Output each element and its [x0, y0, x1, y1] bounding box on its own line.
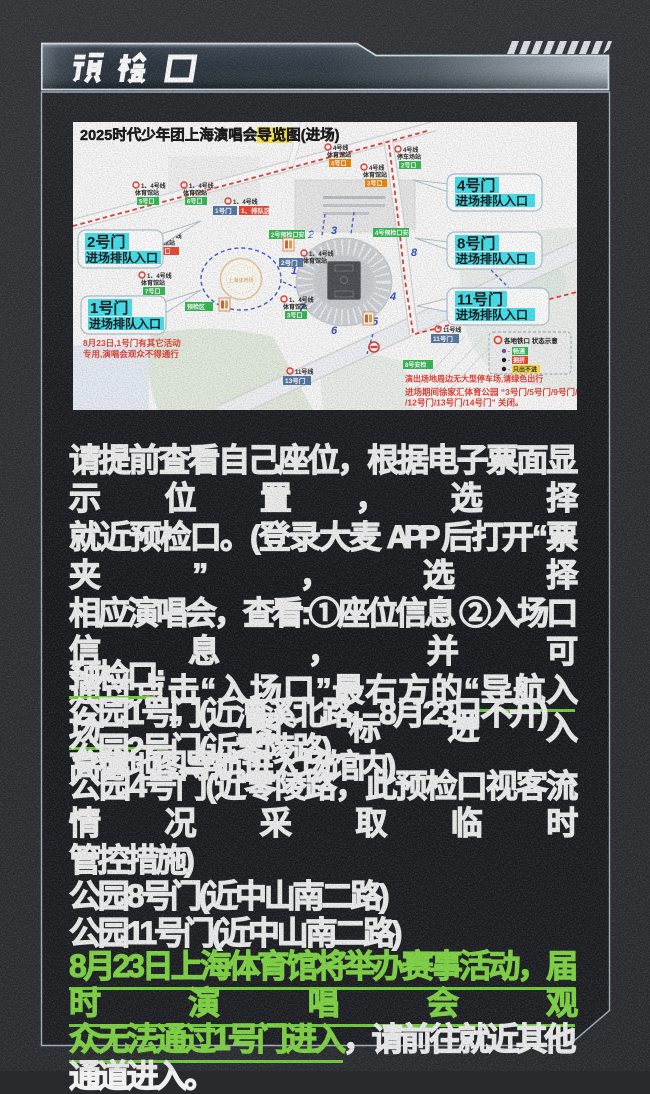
svg-text:8号安检: 8号安检: [405, 361, 426, 369]
svg-text:进场排队入口: 进场排队入口: [456, 307, 528, 322]
svg-text:1号门: 1号门: [215, 206, 232, 215]
svg-text:8号门: 8号门: [457, 235, 495, 253]
svg-text:/12号门/13号门/14号门” 关闭。: /12号门/13号门/14号门” 关闭。: [405, 398, 524, 408]
svg-text:各地铁口 状态示意: 各地铁口 状态示意: [503, 336, 558, 345]
svg-text:体育馆站: 体育馆站: [303, 257, 327, 265]
svg-text:8月23日,1号门有其它活动: 8月23日,1号门有其它活动: [83, 338, 181, 348]
svg-text:2025时代少年团上海演唱会导览图(进场): 2025时代少年团上海演唱会导览图(进场): [80, 126, 340, 144]
svg-text:专用,演唱会观众不得通行: 专用,演唱会观众不得通行: [83, 349, 179, 359]
svg-text:-: -: [508, 350, 510, 356]
svg-text:4号线: 4号线: [333, 144, 348, 152]
svg-text:体育馆站: 体育馆站: [141, 279, 165, 287]
svg-text:预检区: 预检区: [187, 303, 205, 311]
svg-text:11号门: 11号门: [433, 334, 453, 343]
svg-text:8: 8: [411, 247, 418, 259]
svg-text:7号口: 7号口: [145, 288, 160, 296]
svg-text:4号门: 4号门: [457, 177, 495, 195]
svg-text:体育馆站: 体育馆站: [327, 151, 351, 159]
svg-text:3: 3: [331, 225, 337, 237]
svg-text:体育馆站: 体育馆站: [135, 189, 159, 197]
svg-text:只出不进: 只出不进: [513, 366, 537, 374]
svg-text:4: 4: [389, 291, 396, 303]
svg-text:进场期间徐家汇体育公园 “3号门/5号门/9号门/10号门: 进场期间徐家汇体育公园 “3号门/5号门/9号门/10号门: [405, 387, 577, 397]
svg-text:11号线: 11号线: [295, 368, 313, 376]
svg-text:体育馆站: 体育馆站: [363, 171, 387, 179]
svg-text:1、4号线: 1、4号线: [233, 198, 258, 206]
svg-text:-: -: [508, 368, 510, 374]
svg-text:进场排队入口: 进场排队入口: [456, 251, 528, 266]
svg-text:进场排队入口: 进场排队入口: [86, 250, 158, 265]
svg-text:进场排队入口: 进场排队入口: [456, 193, 528, 208]
svg-text:1、4号线: 1、4号线: [147, 272, 172, 280]
svg-text:体育馆站: 体育馆站: [183, 189, 207, 197]
svg-text:6: 6: [331, 325, 338, 337]
svg-text:11号门: 11号门: [457, 291, 503, 309]
svg-text:3号口: 3号口: [287, 312, 302, 320]
svg-text:2号门: 2号门: [281, 258, 298, 267]
svg-text:拥挤: 拥挤: [513, 357, 526, 365]
svg-text:4号线: 4号线: [369, 164, 384, 172]
svg-text:4号口: 4号口: [331, 160, 346, 168]
svg-text:1、4号线: 1、4号线: [309, 250, 334, 258]
svg-text:停车场站: 停车场站: [397, 153, 421, 161]
svg-text:-: -: [508, 359, 510, 365]
svg-text:11号线: 11号线: [443, 326, 461, 334]
svg-text:上海体育场: 上海体育场: [228, 277, 253, 284]
svg-text:1、4号线: 1、4号线: [289, 296, 314, 304]
svg-text:4号预检口安检区: 4号预检口安检区: [375, 229, 420, 237]
svg-text:1、排队区域: 1、排队区域: [241, 206, 278, 215]
svg-text:4号线: 4号线: [403, 146, 418, 154]
svg-text:1号门: 1号门: [90, 299, 128, 317]
svg-text:演出场地周边无大型停车场,请绿色出行: 演出场地周边无大型停车场,请绿色出行: [405, 374, 543, 384]
svg-text:2号门: 2号门: [87, 233, 125, 251]
svg-text:6号口: 6号口: [187, 198, 202, 206]
svg-text:3号口: 3号口: [367, 180, 382, 188]
svg-text:2号口: 2号口: [401, 162, 416, 170]
svg-text:体育馆站: 体育馆站: [283, 303, 307, 311]
svg-text:进场排队入口: 进场排队入口: [89, 316, 161, 331]
svg-text:畅通: 畅通: [513, 348, 525, 356]
svg-text:1、4号线: 1、4号线: [141, 182, 166, 190]
svg-text:1、4号线: 1、4号线: [189, 182, 214, 190]
svg-text:13号门: 13号门: [285, 376, 306, 385]
svg-text:5号口: 5号口: [139, 198, 154, 206]
